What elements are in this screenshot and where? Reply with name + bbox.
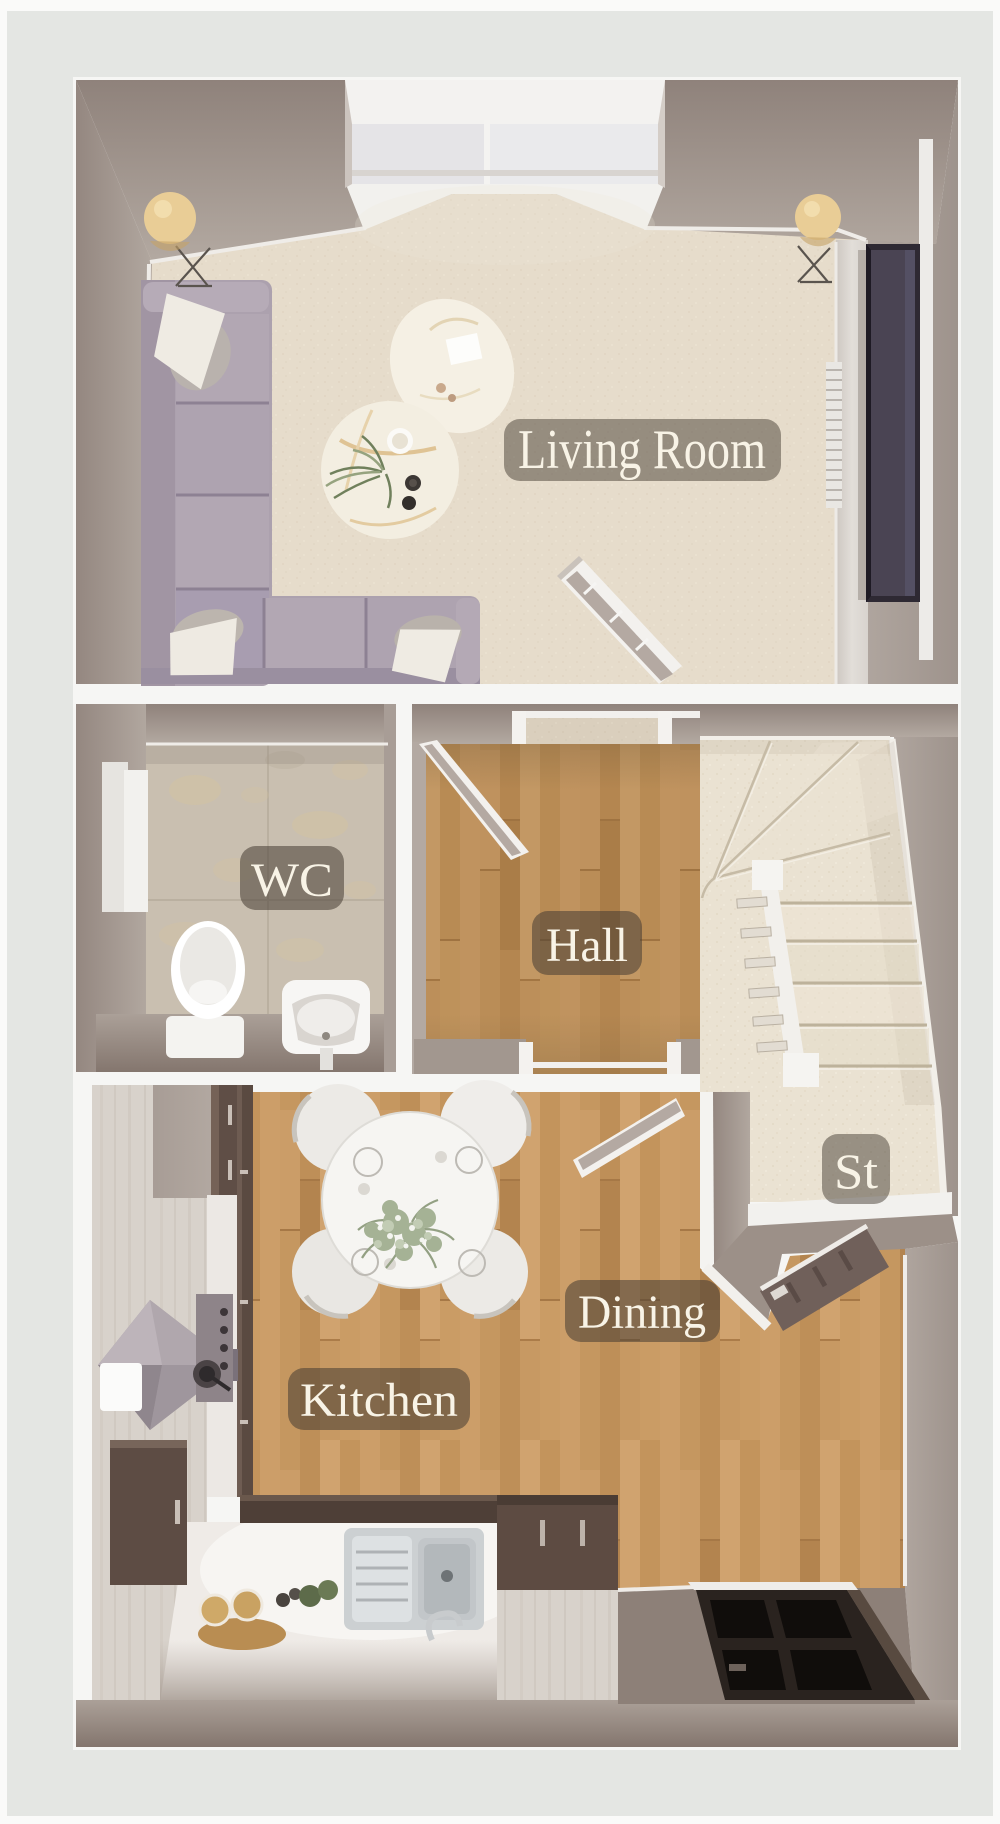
svg-text:St: St <box>834 1143 878 1199</box>
svg-text:Hall: Hall <box>546 919 628 972</box>
svg-text:Kitchen: Kitchen <box>300 1374 458 1427</box>
svg-text:Living Room: Living Room <box>518 419 766 481</box>
svg-text:Dining: Dining <box>578 1286 706 1339</box>
svg-text:WC: WC <box>251 854 333 907</box>
